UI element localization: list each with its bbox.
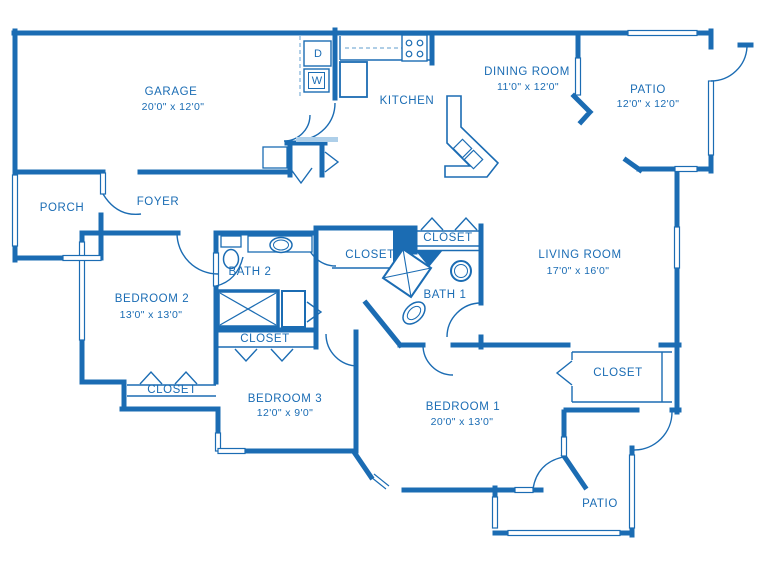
- washer-label: W: [312, 75, 322, 87]
- pass-through: [296, 137, 338, 142]
- door-leaf: [214, 253, 219, 286]
- bath1-label: BATH 1: [423, 289, 466, 301]
- patio-wall: [630, 455, 635, 528]
- closet-door-marker: [421, 218, 443, 230]
- step-marker: [290, 168, 312, 183]
- window: [709, 81, 714, 155]
- toilet-tank: [221, 236, 241, 247]
- sink-basin: [455, 265, 468, 278]
- bedroom2-label: BEDROOM 2: [115, 293, 189, 305]
- porch-rail: [63, 256, 101, 261]
- bedroom3-dims: 12'0" x 9'0": [257, 407, 314, 419]
- door-leaf: [101, 173, 106, 194]
- dining-room-dims: 11'0" x 12'0": [497, 81, 559, 93]
- window: [218, 449, 245, 454]
- patio-bottom-label: PATIO: [582, 498, 618, 510]
- window: [13, 175, 18, 246]
- bath2-label: BATH 2: [228, 266, 271, 278]
- window-diagonal: [371, 474, 389, 489]
- window: [562, 437, 567, 456]
- window: [628, 31, 697, 36]
- closet-door-marker: [140, 372, 162, 384]
- patio-top-dims: 12'0" x 12'0": [617, 98, 680, 110]
- window: [675, 227, 680, 268]
- patio-wall: [493, 497, 498, 528]
- living-room-label: LIVING ROOM: [538, 249, 621, 261]
- step: [263, 147, 287, 168]
- bedroom1-dims: 20'0" x 13'0": [431, 416, 494, 428]
- living-room-dims: 17'0" x 16'0": [547, 265, 610, 277]
- closet-bath2-hall-label: CLOSET: [240, 333, 290, 345]
- closet-door-marker: [557, 361, 572, 385]
- bedroom2-dims: 13'0" x 13'0": [120, 309, 183, 321]
- bedroom1-label: BEDROOM 1: [426, 401, 500, 413]
- door-marker: [325, 152, 338, 172]
- foyer-label: FOYER: [137, 196, 180, 208]
- closet-door-marker: [455, 218, 477, 230]
- closet-door-marker: [175, 372, 197, 384]
- closet-bedroom1-label: CLOSET: [593, 367, 643, 379]
- patio-top-label: PATIO: [630, 84, 666, 96]
- dryer-label: D: [314, 48, 322, 60]
- porch-label: PORCH: [40, 202, 85, 214]
- bedroom3-label: BEDROOM 3: [248, 393, 322, 405]
- floor-plan: GARAGE 20'0" x 12'0" KITCHEN DINING ROOM…: [0, 0, 764, 573]
- closet-bedroom2-label: CLOSET: [147, 384, 197, 396]
- patio-wall: [508, 531, 620, 536]
- dining-room-label: DINING ROOM: [484, 66, 570, 78]
- garage-dims: 20'0" x 12'0": [142, 101, 205, 113]
- stove: [402, 35, 427, 61]
- sink-basin: [274, 240, 289, 250]
- kitchen-label: KITCHEN: [380, 95, 435, 107]
- closet-hall-label: CLOSET: [345, 249, 395, 261]
- linen-cabinet: [282, 291, 305, 327]
- closet-door-marker: [235, 349, 257, 361]
- closet-door-marker: [271, 349, 293, 361]
- refrigerator: [340, 62, 367, 97]
- door-opening: [576, 58, 581, 95]
- bath2-fixtures: [218, 236, 312, 327]
- window: [675, 167, 697, 172]
- window: [515, 488, 533, 493]
- windows: [13, 31, 714, 536]
- garage-label: GARAGE: [145, 86, 198, 98]
- closet-bath1-label: CLOSET: [423, 232, 473, 244]
